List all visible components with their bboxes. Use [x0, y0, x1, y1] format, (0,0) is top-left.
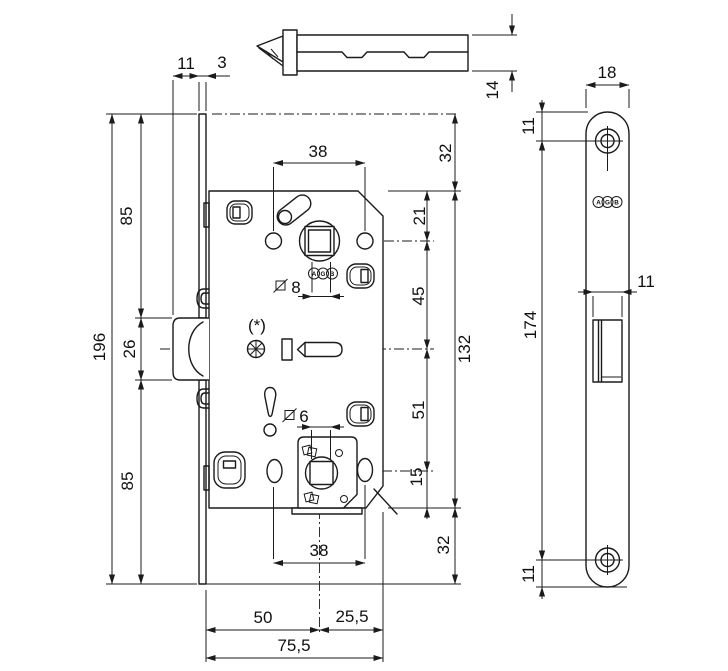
lock-side-view: A G B	[173, 114, 397, 584]
dim-label-3: 3	[217, 53, 226, 72]
wc-plate-base-tab	[292, 508, 362, 514]
dim-faceplate-height: 196	[90, 114, 112, 584]
dim-label-32-top: 32	[436, 144, 455, 163]
faceplate-side-upper	[199, 114, 206, 318]
logo-letter-b2: B	[614, 200, 619, 207]
latch-body	[297, 35, 468, 71]
dim-top-to-hole: 11	[519, 100, 542, 153]
logo-letter-g: G	[321, 271, 326, 278]
oval-hole-right	[358, 459, 373, 482]
dim-label-32-bottom: 32	[434, 536, 453, 555]
fixing-hole-right	[357, 233, 373, 249]
spindle-square-outer	[305, 227, 334, 256]
dim-label-50: 50	[254, 608, 273, 627]
logo-letter-a2: A	[596, 200, 601, 207]
dim-latch-protrusion: 11	[173, 54, 199, 76]
dim-body-bottom-to-plate: 32	[434, 508, 455, 584]
dim-spindle-to-back: 25,5	[320, 607, 384, 630]
dim-label-51: 51	[409, 401, 428, 420]
dim-label-132: 132	[455, 335, 474, 363]
technical-drawing-mortise-lock: 14	[0, 0, 728, 671]
dim-label-85-bottom: 85	[118, 472, 137, 491]
dim-label-26: 26	[120, 340, 139, 359]
dim-hole-to-bottom: 11	[519, 548, 542, 599]
dim-plate-top-to-body: 32	[436, 114, 455, 191]
dim-label-38-bottom: 38	[310, 541, 329, 560]
dim-faceplate-thickness: 3	[207, 53, 227, 76]
dim-top-to-latch: 85	[117, 114, 141, 318]
latch-bolt-part-side-view: 14	[257, 14, 517, 99]
dim-label-174: 174	[521, 311, 540, 339]
dim-hole-span: 174	[521, 141, 542, 560]
dim-label-sq8: 8	[291, 278, 300, 297]
dim-wc-to-body-bottom: 15	[407, 460, 427, 519]
corner-chamfer-line	[374, 489, 397, 514]
dim-label-11-fp-bottom: 11	[519, 565, 538, 583]
dim-label-11-fp-top: 11	[519, 117, 538, 135]
dim-body-top-to-spindle: 21	[410, 191, 429, 241]
dim-latch-part-height: 14	[472, 14, 517, 99]
wc-square	[310, 462, 333, 485]
dim-latch-to-bottom: 85	[118, 380, 141, 584]
oval-hole-left	[267, 460, 282, 483]
dim-label-196: 196	[90, 333, 109, 361]
dim-label-sq6: 6	[299, 407, 308, 426]
dim-label-25-5: 25,5	[335, 607, 368, 626]
dimensions-bottom: 50 25,5 75,5	[206, 512, 383, 662]
dim-plate-width: 18	[586, 63, 629, 108]
dim-label-75-5: 75,5	[277, 636, 310, 655]
dim-backset: 50	[206, 608, 320, 630]
small-hole	[264, 424, 276, 436]
latch-bolt-side	[173, 318, 209, 380]
dim-label-45: 45	[409, 287, 428, 306]
fixing-hole-left	[266, 233, 282, 249]
latch-window	[593, 320, 622, 382]
adjust-screw-cross	[248, 341, 265, 358]
dim-label-11-latch: 11	[637, 272, 655, 291]
dim-label-11-protrusion: 11	[177, 54, 195, 73]
latch-flange	[283, 30, 297, 75]
dim-label-21: 21	[410, 207, 429, 226]
note-star: (*)	[248, 316, 266, 335]
logo-letter-g2: G	[605, 200, 610, 207]
drawing-canvas: 14	[0, 0, 728, 671]
faceplate-front-view: A G B 18 11 11	[519, 63, 655, 599]
dim-body-height: 132	[455, 191, 474, 508]
dim-total-depth: 75,5	[206, 636, 383, 658]
dim-label-38-top: 38	[309, 142, 328, 161]
dim-latch-height: 26	[120, 318, 141, 380]
dim-label-18: 18	[598, 63, 617, 82]
dim-spindle-to-latch-axis: 45	[409, 241, 428, 349]
dim-latch-axis-to-wc: 51	[409, 349, 428, 471]
dim-label-15: 15	[407, 468, 426, 487]
dim-label-85-top: 85	[117, 207, 136, 226]
dim-label-14: 14	[483, 81, 502, 100]
slider-block	[282, 339, 292, 360]
slider-capsule	[298, 343, 343, 357]
faceplate-side-lower	[199, 380, 206, 584]
